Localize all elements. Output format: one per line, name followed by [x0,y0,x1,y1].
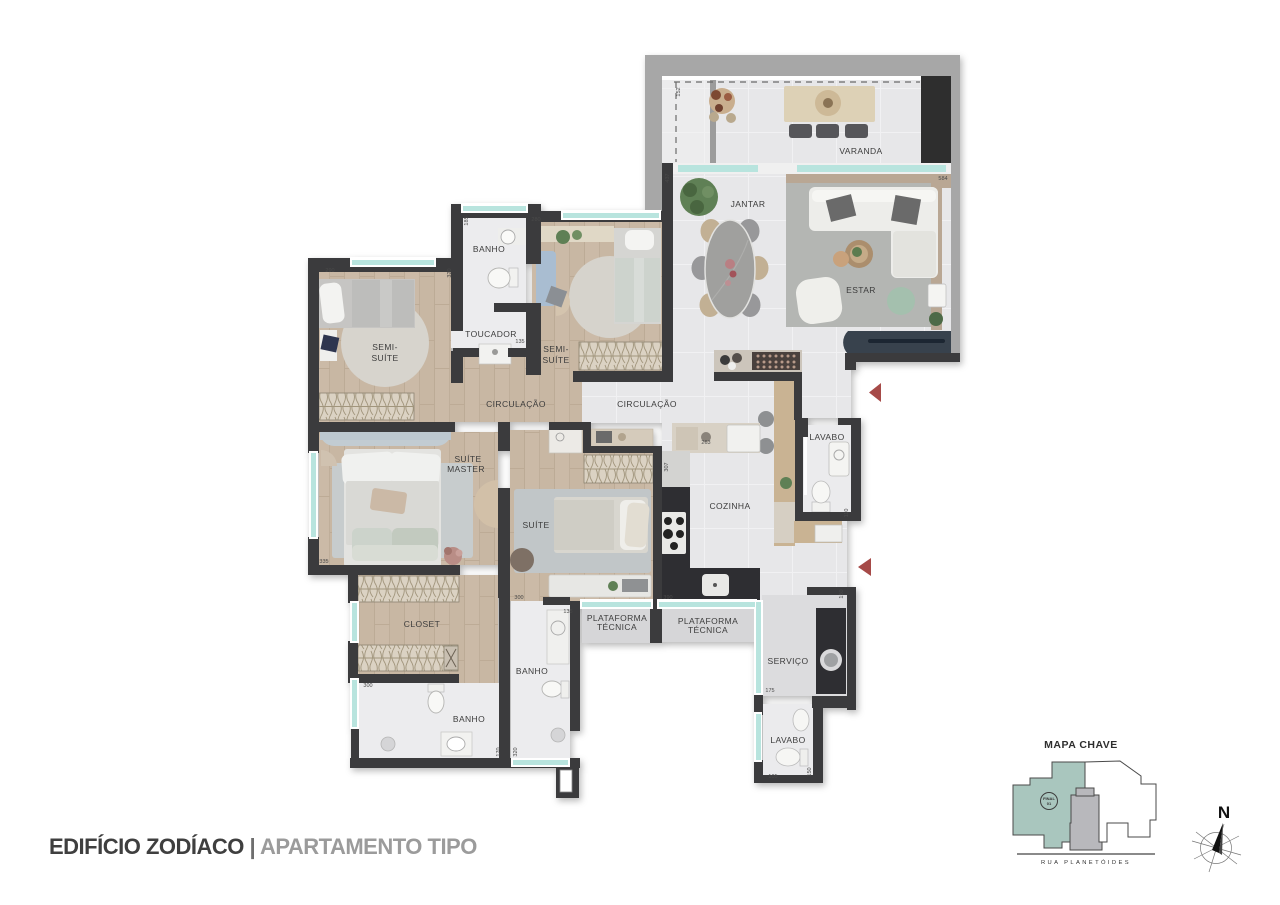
svg-text:LAVABO: LAVABO [770,735,805,745]
svg-text:SUÍTE: SUÍTE [522,520,549,530]
svg-text:320: 320 [513,747,519,756]
svg-text:135: 135 [515,339,524,345]
svg-text:CIRCULAÇÃO: CIRCULAÇÃO [486,399,546,409]
svg-text:JANTAR: JANTAR [731,199,766,209]
svg-text:185: 185 [464,216,470,225]
svg-text:LAVABO: LAVABO [809,432,844,442]
svg-text:280: 280 [531,217,540,223]
svg-text:263: 263 [701,440,710,446]
svg-text:TOUCADOR: TOUCADOR [465,329,517,339]
svg-text:SUÍTE: SUÍTE [542,355,569,365]
svg-text:SUÍTE: SUÍTE [371,353,398,363]
svg-text:COZINHA: COZINHA [709,501,750,511]
svg-text:SERVIÇO: SERVIÇO [768,656,809,666]
svg-text:290: 290 [325,268,334,274]
svg-text:TÉCNICA: TÉCNICA [597,622,637,632]
svg-text:175: 175 [765,688,774,694]
svg-text:170: 170 [496,747,502,756]
svg-text:CIRCULAÇÃO: CIRCULAÇÃO [617,399,677,409]
svg-text:CLOSET: CLOSET [404,619,440,629]
svg-text:105: 105 [768,774,777,780]
svg-text:MAPA CHAVE: MAPA CHAVE [1044,739,1118,751]
svg-text:390: 390 [663,595,672,601]
svg-text:BANHO: BANHO [453,714,485,724]
svg-text:437: 437 [665,173,671,182]
svg-text:SUÍTE: SUÍTE [454,454,481,464]
svg-text:SEMI-: SEMI- [372,342,398,352]
svg-text:150: 150 [807,767,813,776]
svg-text:335: 335 [319,559,328,565]
svg-text:300: 300 [363,683,372,689]
svg-text:152: 152 [676,87,682,96]
svg-text:EDIFÍCIO ZODÍACO | APARTAMENTO: EDIFÍCIO ZODÍACO | APARTAMENTO TIPO [49,834,477,859]
svg-text:01: 01 [1047,801,1052,806]
svg-text:150: 150 [839,589,845,598]
svg-text:N: N [1218,803,1230,822]
svg-text:300: 300 [514,595,523,601]
svg-text:110: 110 [844,509,850,518]
svg-text:135: 135 [563,609,572,615]
svg-text:BANHO: BANHO [516,666,548,676]
svg-text:TÉCNICA: TÉCNICA [688,625,728,635]
svg-text:VARANDA: VARANDA [839,146,882,156]
svg-text:BANHO: BANHO [473,244,505,254]
svg-text:584: 584 [938,176,947,182]
svg-text:MASTER: MASTER [447,464,485,474]
svg-text:RUA PLANETÓIDES: RUA PLANETÓIDES [1041,859,1131,866]
svg-text:320: 320 [447,268,453,277]
svg-text:SEMI-: SEMI- [543,344,569,354]
svg-text:307: 307 [664,462,670,471]
svg-text:ESTAR: ESTAR [846,285,876,295]
